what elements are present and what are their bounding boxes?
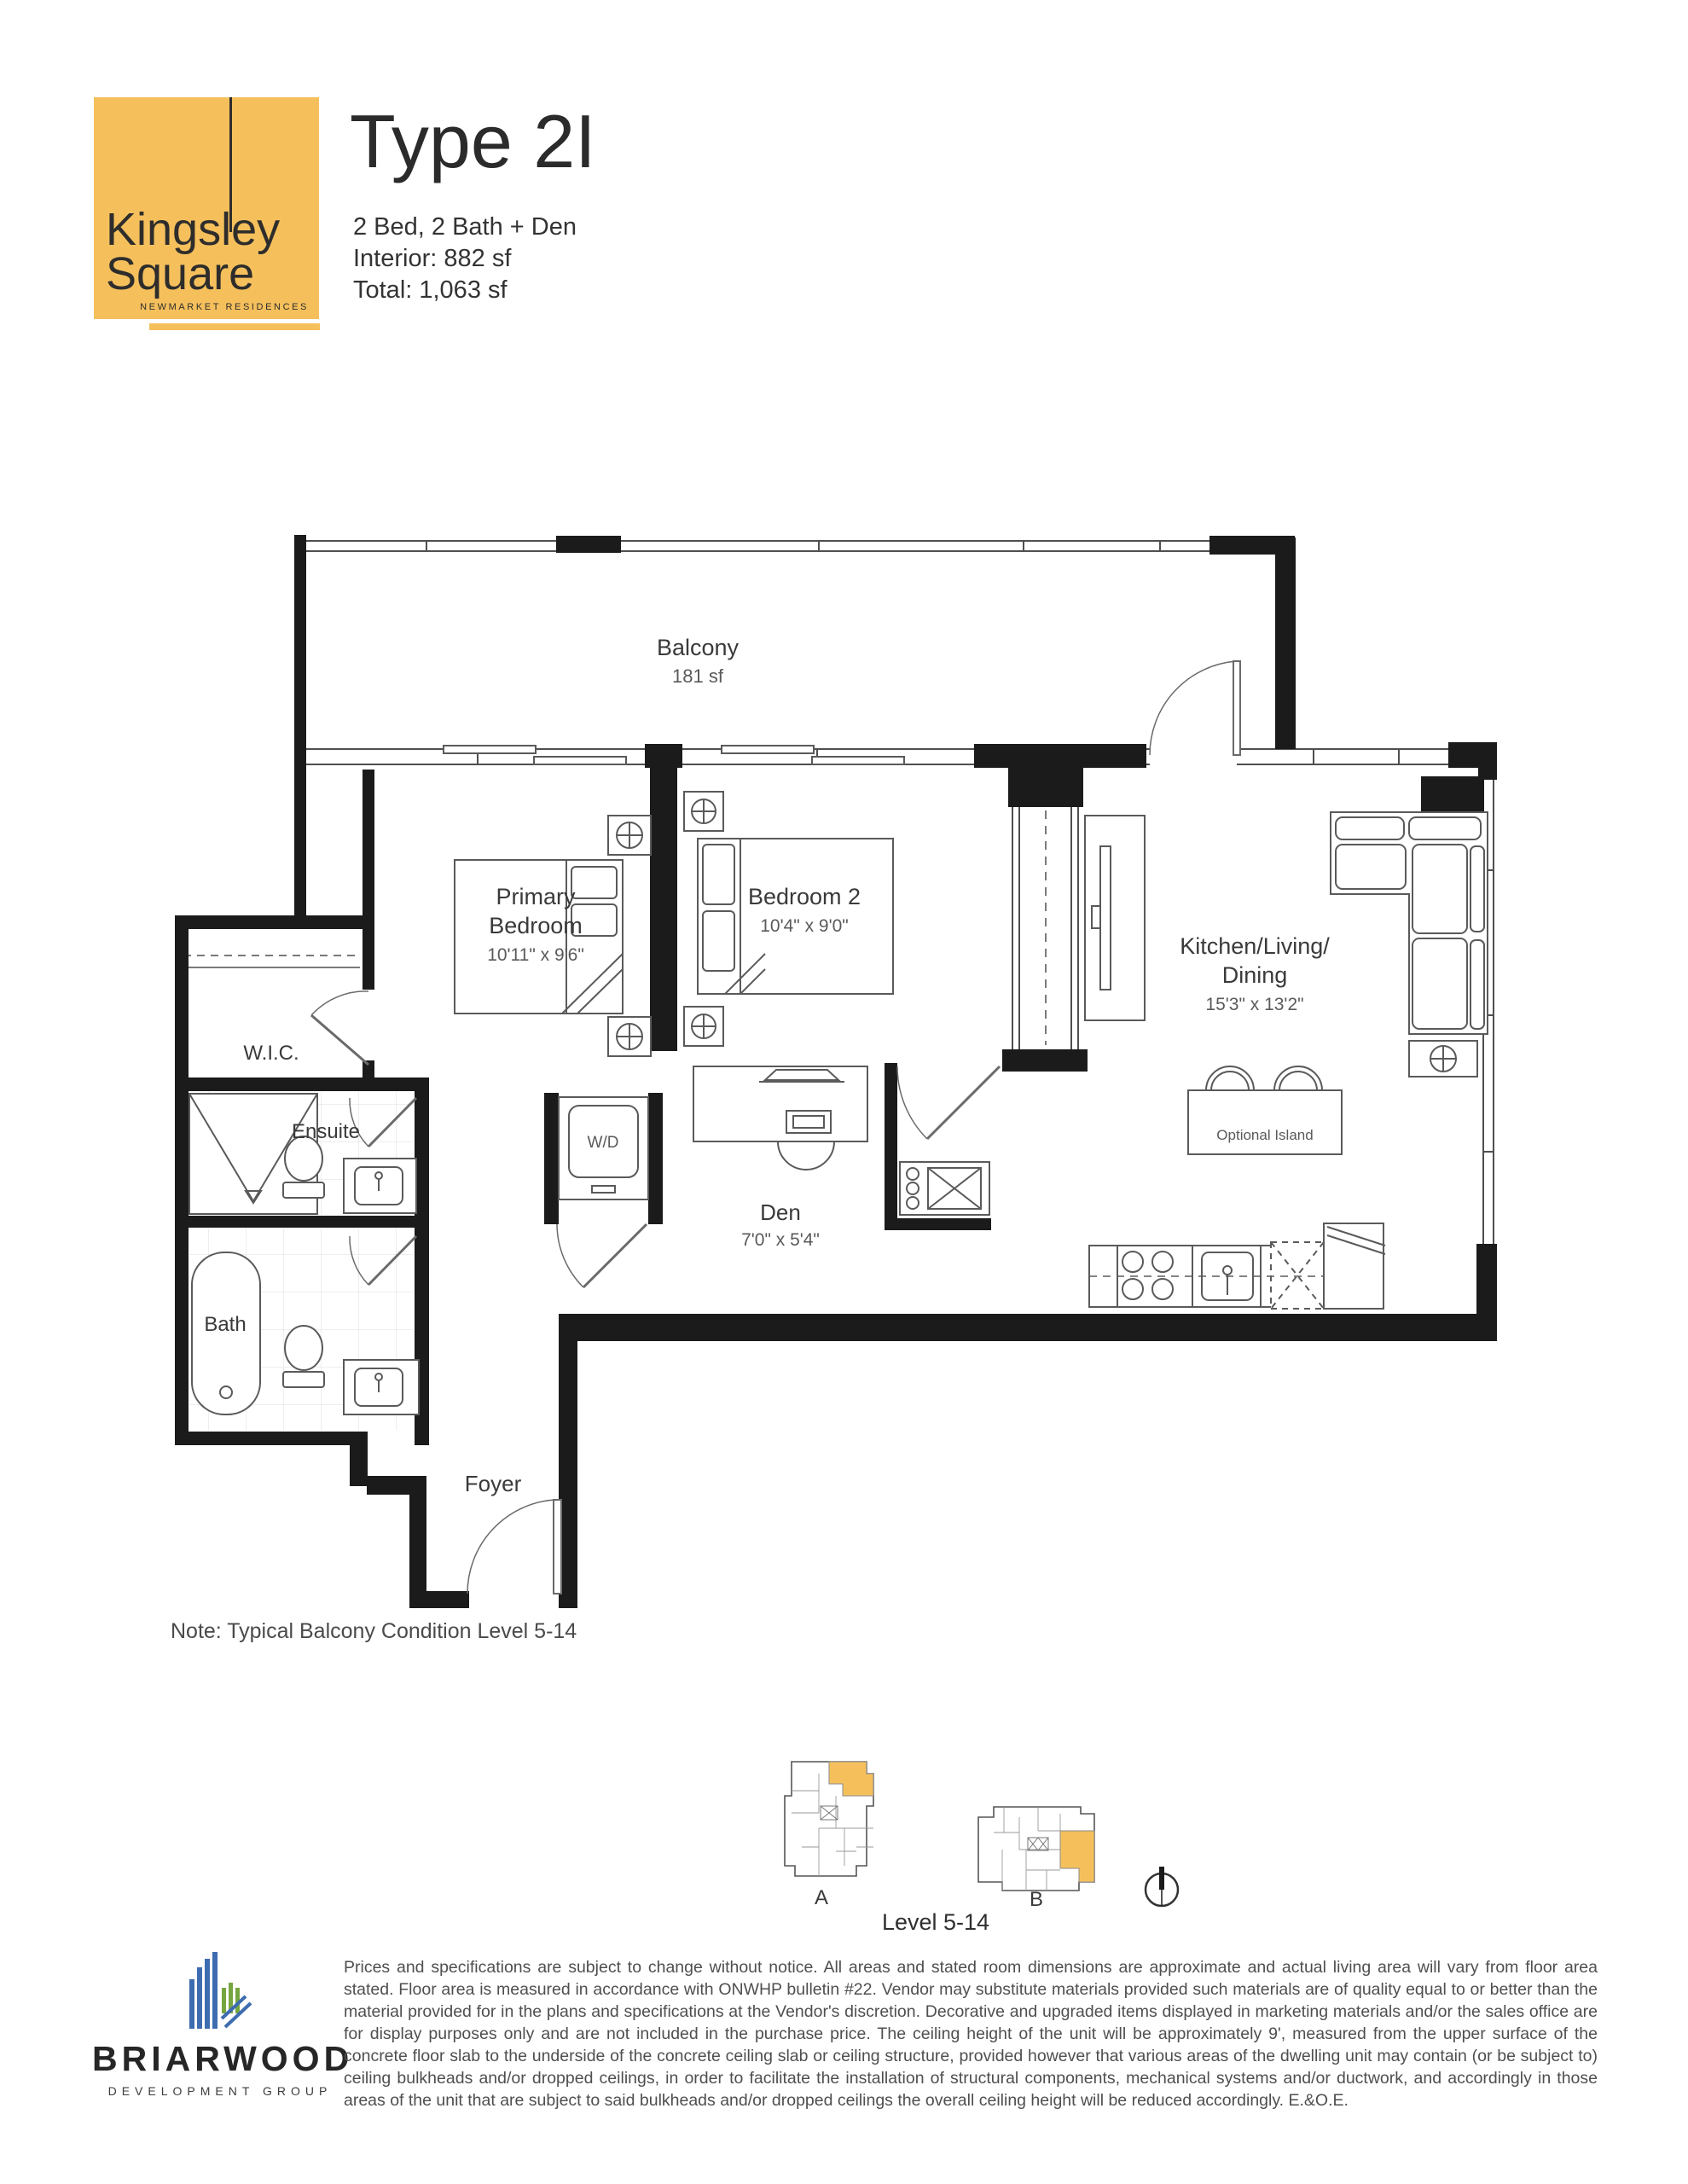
spec-total: Total: 1,063 sf — [353, 275, 577, 306]
keyplan-label-a: A — [815, 1886, 828, 1909]
briarwood-building-icon — [186, 1952, 254, 2030]
label-ensuite: Ensuite — [292, 1120, 360, 1143]
keyplan-level: Level 5-14 — [882, 1909, 989, 1935]
briarwood-name: BRIARWOOD — [92, 2039, 348, 2079]
label-bedroom2-dims: 10'4" x 9'0" — [760, 916, 849, 936]
slider-panel — [812, 757, 904, 764]
label-primary-1: Primary — [496, 884, 576, 909]
label-den-dims: 7'0" x 5'4" — [741, 1230, 820, 1250]
briarwood-logo: BRIARWOOD DEVELOPMENT GROUP — [92, 1952, 348, 2098]
end-table — [1409, 1041, 1477, 1077]
logo-vertical-line — [229, 97, 232, 232]
kitchen-appliance — [900, 1162, 989, 1215]
label-foyer: Foyer — [465, 1471, 522, 1496]
kingsley-square-logo: Kingsley Square NEWMARKET RESIDENCES — [94, 97, 319, 319]
briarwood-tagline: DEVELOPMENT GROUP — [92, 2084, 348, 2098]
bath-vanity — [344, 1360, 419, 1414]
spec-beds-baths: 2 Bed, 2 Bath + Den — [353, 212, 577, 243]
entry-door-leaf — [554, 1500, 561, 1594]
wic-door-leaf — [311, 1015, 368, 1065]
logo-word-1: Kingsley — [106, 206, 280, 253]
compass-icon — [1146, 1867, 1178, 1906]
label-bath: Bath — [204, 1313, 246, 1336]
slider-panel — [722, 746, 814, 753]
ensuite-toilet — [283, 1136, 324, 1198]
label-island: Optional Island — [1216, 1127, 1313, 1143]
slider-panel — [534, 757, 626, 764]
label-primary-dims: 10'11" x 9'6" — [487, 945, 584, 965]
spec-interior: Interior: 882 sf — [353, 243, 577, 275]
label-wd: W/D — [588, 1134, 619, 1152]
kitchen-counter — [1089, 1223, 1385, 1309]
label-wic: W.I.C. — [243, 1042, 299, 1065]
den-desk — [693, 1066, 867, 1170]
keyplan-diagram: A B Level 5-14 — [751, 1740, 1228, 1949]
label-kitchen-2: Dining — [1222, 962, 1288, 988]
logo-word-2: Square — [106, 251, 254, 297]
balcony-note: Note: Typical Balcony Condition Level 5-… — [171, 1619, 577, 1644]
slider-panel — [444, 746, 536, 753]
logo-tagline: NEWMARKET RESIDENCES — [140, 302, 309, 312]
label-den: Den — [760, 1199, 801, 1225]
balcony-door-leaf — [1233, 661, 1240, 755]
label-bedroom2: Bedroom 2 — [748, 884, 861, 909]
label-kitchen-1: Kitchen/Living/ — [1180, 933, 1330, 959]
laundry-door-leaf — [583, 1224, 647, 1287]
label-kitchen-dims: 15'3" x 13'2" — [1205, 995, 1303, 1014]
keyplan-building-b — [978, 1807, 1094, 1891]
sofa — [1331, 812, 1488, 1034]
ensuite-vanity — [344, 1159, 416, 1213]
label-balcony: Balcony — [657, 635, 740, 660]
logo-underline-bar — [149, 323, 320, 330]
keyplan-building-a — [785, 1762, 873, 1876]
label-balcony-area: 181 sf — [672, 665, 724, 687]
floor-plan-drawing: Balcony 181 sf Primary Bedroom 10'11" x … — [171, 503, 1501, 1621]
keyplan-label-b: B — [1030, 1888, 1043, 1911]
label-primary-2: Bedroom — [489, 913, 583, 938]
legal-disclaimer: Prices and specifications are subject to… — [344, 1956, 1598, 2111]
unit-specs: 2 Bed, 2 Bath + Den Interior: 882 sf Tot… — [353, 212, 577, 306]
bedroom2-door-leaf — [927, 1066, 1000, 1139]
tv-media-wall — [1085, 816, 1145, 1020]
bath-toilet — [283, 1326, 324, 1387]
page-title: Type 2I — [350, 102, 596, 181]
